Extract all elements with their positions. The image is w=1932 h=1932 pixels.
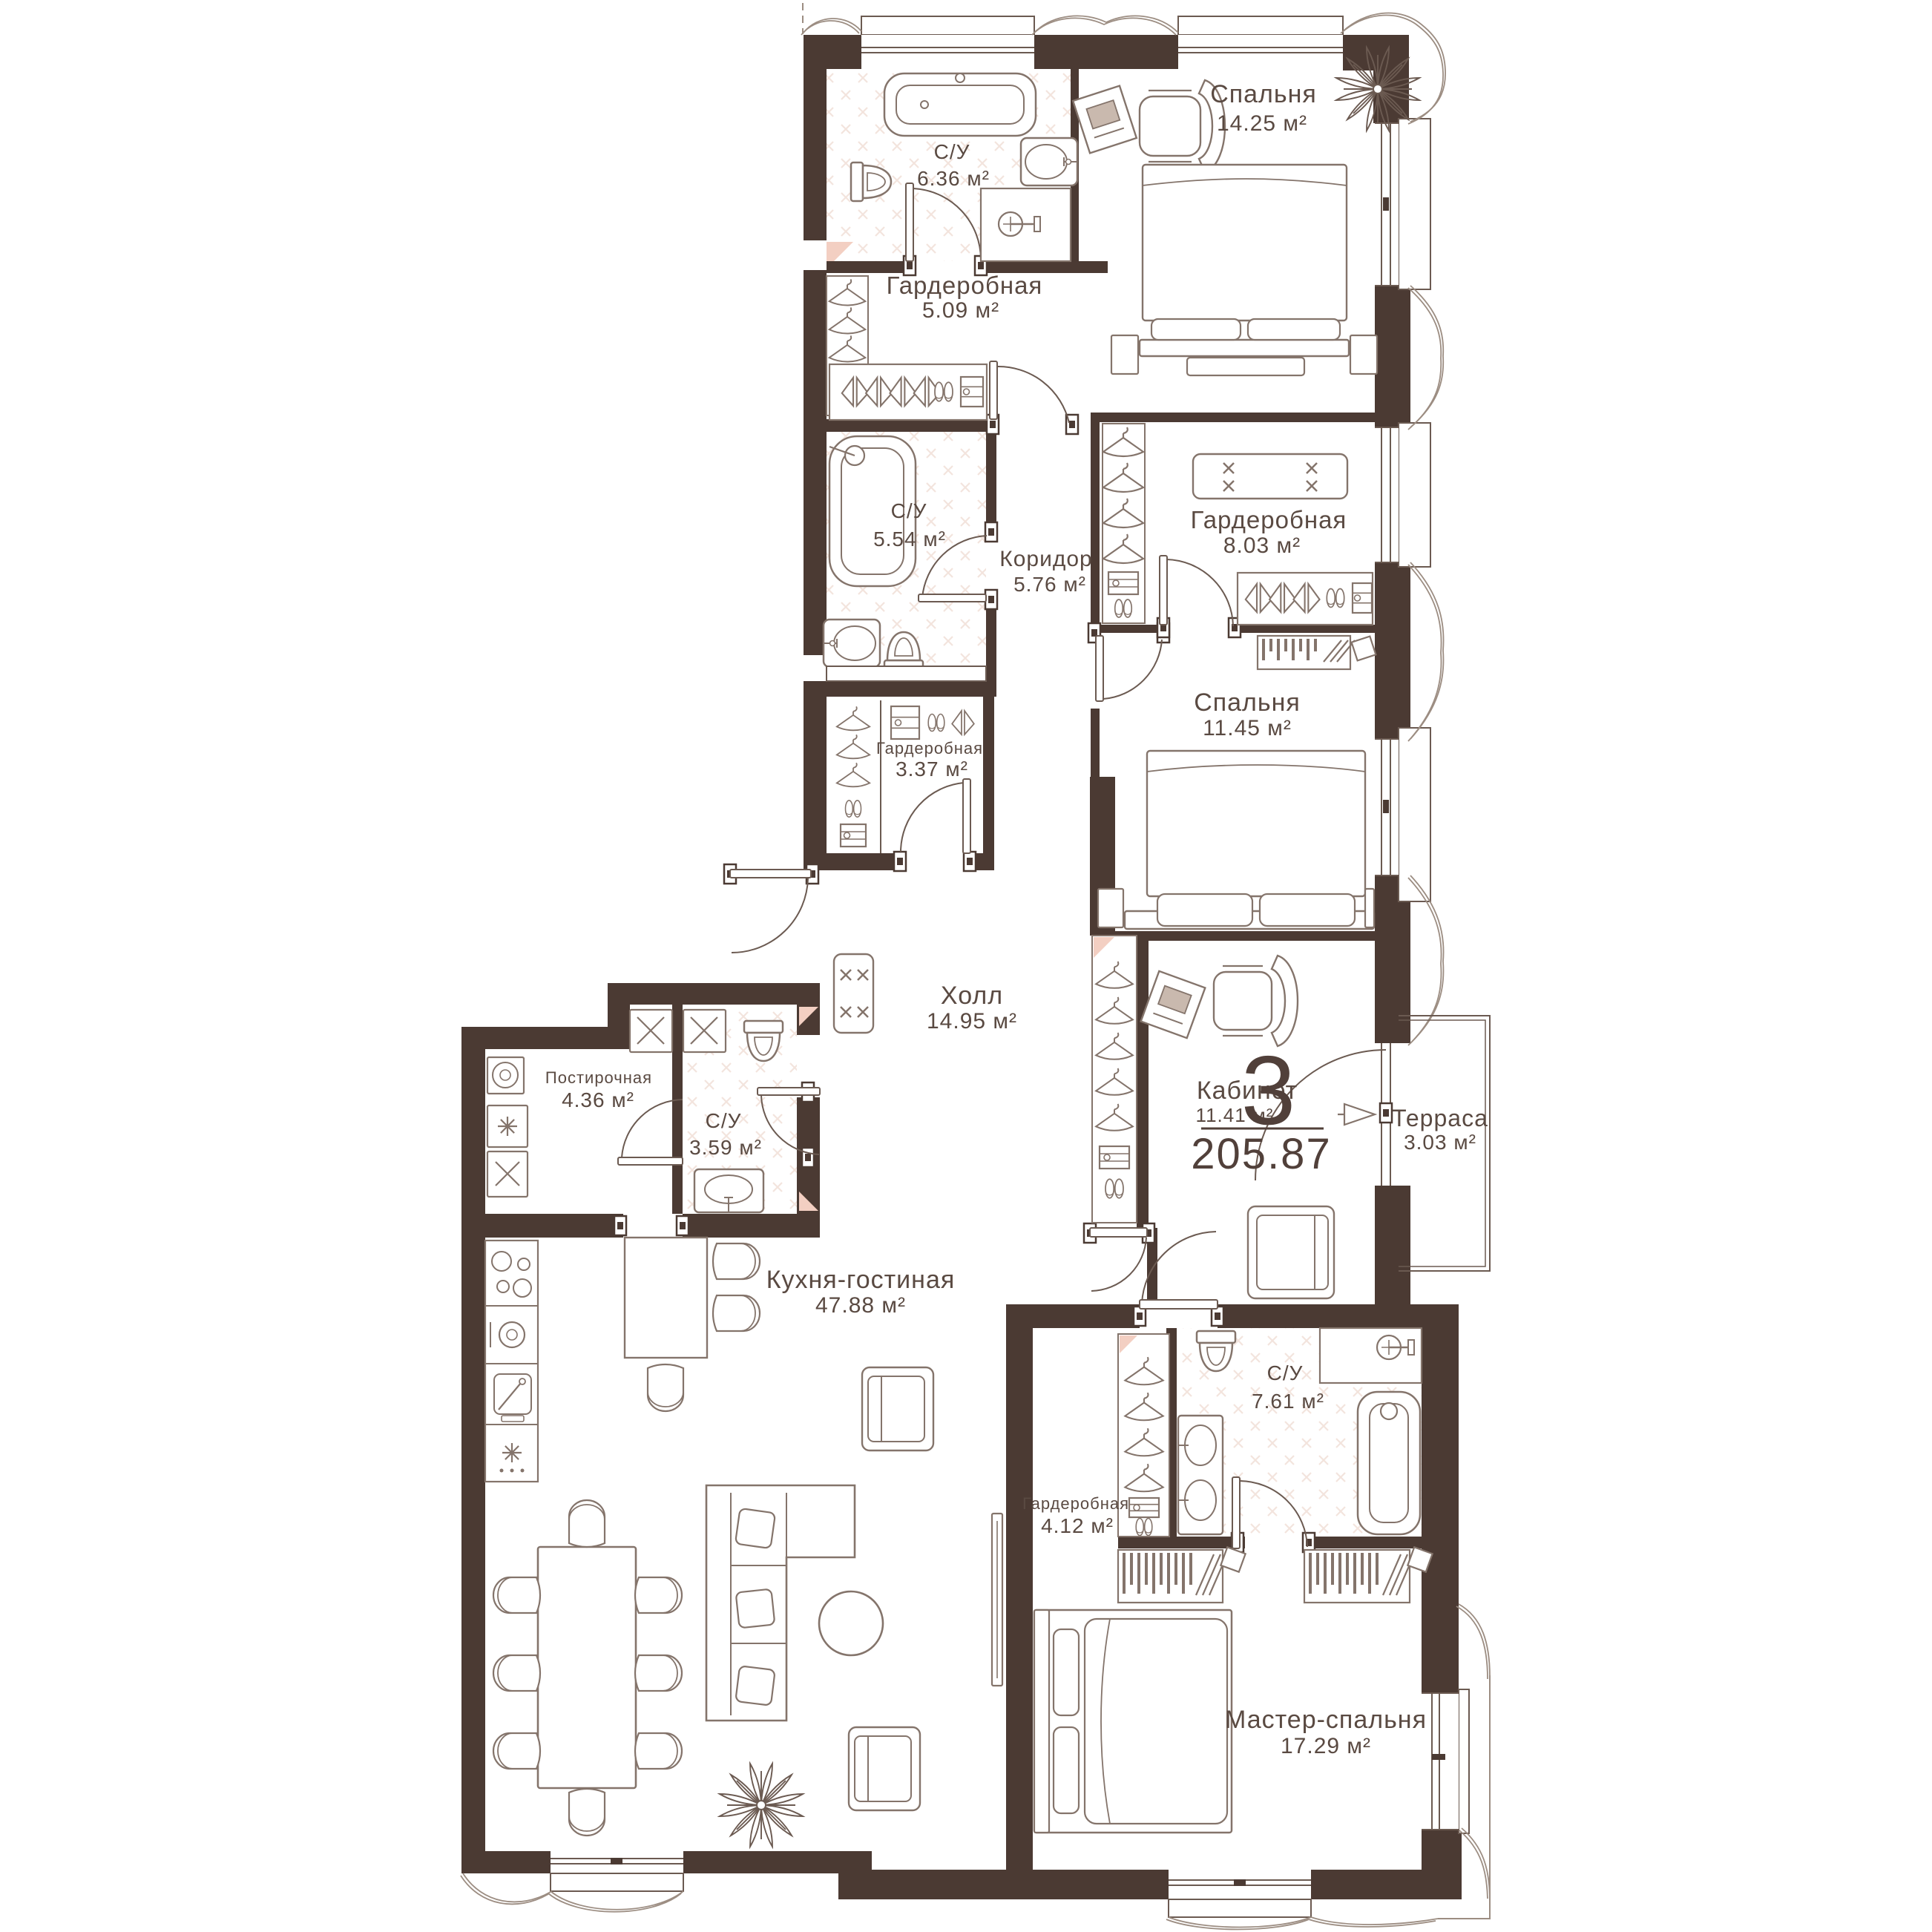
svg-text:Гардеробная: Гардеробная bbox=[887, 272, 1043, 299]
svg-text:Мастер-спальня: Мастер-спальня bbox=[1225, 1706, 1427, 1734]
svg-text:205.87: 205.87 bbox=[1191, 1130, 1331, 1178]
svg-text:14.95 м²: 14.95 м² bbox=[927, 1009, 1017, 1034]
svg-text:6.36 м²: 6.36 м² bbox=[917, 167, 990, 190]
svg-text:17.29 м²: 17.29 м² bbox=[1281, 1734, 1371, 1758]
svg-text:С/У: С/У bbox=[934, 140, 970, 163]
svg-text:3.37 м²: 3.37 м² bbox=[896, 758, 968, 781]
svg-text:5.54 м²: 5.54 м² bbox=[873, 528, 946, 551]
svg-text:4.36 м²: 4.36 м² bbox=[562, 1088, 634, 1111]
svg-text:Терраса: Терраса bbox=[1392, 1105, 1488, 1131]
svg-text:Коридор: Коридор bbox=[999, 547, 1092, 571]
svg-text:11.45 м²: 11.45 м² bbox=[1203, 716, 1292, 740]
svg-text:14.25 м²: 14.25 м² bbox=[1217, 111, 1307, 136]
svg-text:Холл: Холл bbox=[941, 982, 1003, 1010]
svg-text:С/У: С/У bbox=[706, 1109, 742, 1132]
svg-text:Спальня: Спальня bbox=[1194, 689, 1301, 717]
svg-text:Гардеробная: Гардеробная bbox=[1022, 1494, 1129, 1513]
svg-text:С/У: С/У bbox=[891, 499, 927, 522]
svg-text:Спальня: Спальня bbox=[1210, 80, 1317, 108]
svg-text:3.03 м²: 3.03 м² bbox=[1404, 1131, 1476, 1154]
svg-text:Постирочная: Постирочная bbox=[545, 1068, 652, 1087]
svg-text:4.12 м²: 4.12 м² bbox=[1041, 1514, 1114, 1537]
svg-text:5.09 м²: 5.09 м² bbox=[922, 298, 999, 323]
svg-text:Гардеробная: Гардеробная bbox=[1191, 506, 1347, 533]
svg-text:5.76 м²: 5.76 м² bbox=[1013, 573, 1086, 596]
svg-text:7.61 м²: 7.61 м² bbox=[1252, 1390, 1324, 1413]
svg-text:47.88 м²: 47.88 м² bbox=[815, 1293, 906, 1318]
svg-text:8.03 м²: 8.03 м² bbox=[1223, 533, 1301, 558]
svg-text:С/У: С/У bbox=[1267, 1361, 1304, 1384]
svg-text:Гардеробная: Гардеробная bbox=[876, 739, 983, 758]
svg-text:3.59 м²: 3.59 м² bbox=[689, 1136, 762, 1159]
svg-text:Кухня-гостиная: Кухня-гостиная bbox=[766, 1266, 956, 1294]
